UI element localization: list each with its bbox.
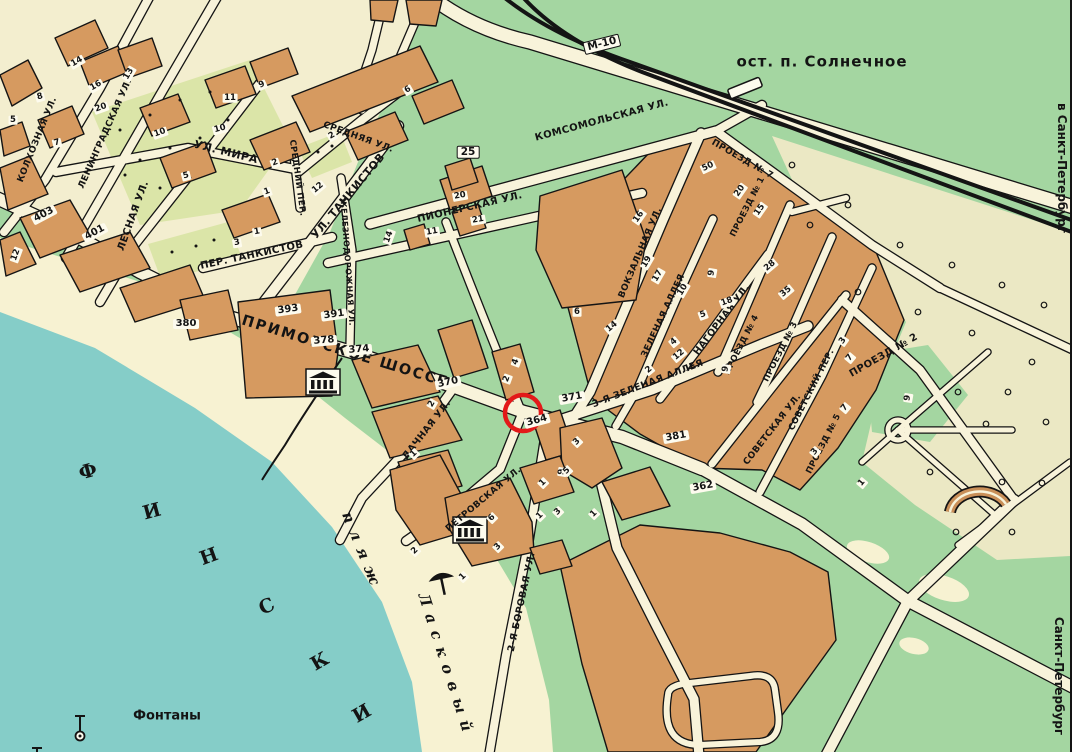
house-number: 11 (424, 227, 440, 238)
house-number: 3 (232, 238, 242, 248)
house-number: 1 (252, 227, 262, 237)
house-number: 6 (573, 308, 582, 317)
house-number: 9 (707, 268, 717, 278)
place-label: Фонтаны (133, 710, 201, 723)
house-number: 21 (470, 215, 486, 226)
house-number: 20 (452, 191, 468, 202)
direction-label: в Санкт-Петербург (1056, 103, 1068, 233)
house-number: 9 (903, 393, 913, 403)
direction-label: Санкт-Петербург (1053, 617, 1065, 735)
city-map: КОЛХОЗНАЯ УЛ.ЛЕНИНГРАДСКАЯ УЛ.ЛЕСНАЯ УЛ.… (0, 0, 1077, 752)
station-label: ост. п. Солнечное (736, 55, 907, 70)
map-canvas (0, 0, 1077, 752)
house-number: 5 (9, 116, 18, 125)
house-number: 5 (181, 171, 192, 182)
house-number: 11 (223, 94, 238, 103)
route-number-plaque: 380 (173, 319, 199, 329)
house-number: 8 (35, 92, 46, 103)
house-number: 7 (52, 138, 63, 149)
road-badge: 25 (457, 146, 480, 159)
house-number: 9 (721, 364, 731, 374)
